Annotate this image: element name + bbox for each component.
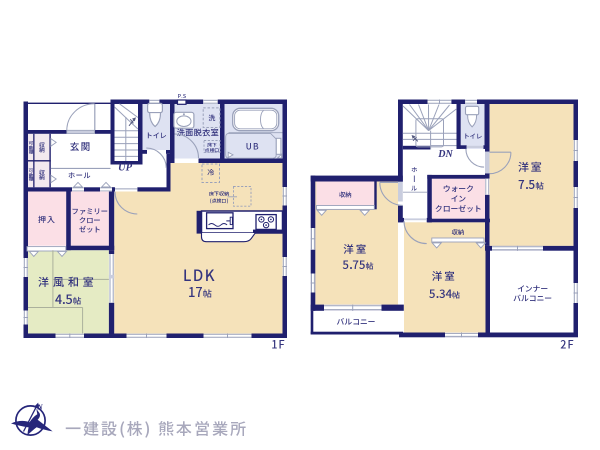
svg-text:クローゼット: クローゼット bbox=[435, 204, 482, 215]
svg-text:バルコニー: バルコニー bbox=[337, 317, 376, 328]
svg-text:収納: 収納 bbox=[38, 168, 47, 180]
svg-text:ゼット: ゼット bbox=[79, 225, 101, 235]
svg-text:UB: UB bbox=[246, 141, 260, 153]
svg-text:収納: 収納 bbox=[38, 141, 47, 153]
svg-text:洋風和室: 洋風和室 bbox=[38, 274, 98, 290]
svg-text:押入: 押入 bbox=[38, 215, 56, 226]
svg-text:可動棚: 可動棚 bbox=[28, 140, 34, 154]
svg-text:DN: DN bbox=[437, 149, 453, 160]
svg-text:ホール: ホール bbox=[68, 171, 91, 181]
svg-text:収納: 収納 bbox=[338, 190, 352, 199]
svg-text:2F: 2F bbox=[560, 337, 575, 353]
svg-text:(点検口): (点検口) bbox=[210, 198, 229, 205]
svg-text:P.S: P.S bbox=[178, 92, 187, 100]
svg-text:ホ: ホ bbox=[411, 165, 418, 174]
svg-text:収納: 収納 bbox=[451, 227, 465, 236]
svg-text:玄関: 玄関 bbox=[70, 139, 91, 153]
svg-text:N: N bbox=[36, 403, 43, 412]
svg-text:洋室: 洋室 bbox=[518, 159, 544, 175]
svg-text:点検口: 点検口 bbox=[204, 147, 220, 154]
svg-text:洗: 洗 bbox=[208, 114, 215, 124]
svg-text:ル: ル bbox=[411, 184, 417, 193]
svg-text:洗面脱衣室: 洗面脱衣室 bbox=[177, 127, 219, 139]
svg-text:トイレ: トイレ bbox=[463, 131, 482, 140]
svg-text:洋室: 洋室 bbox=[432, 269, 457, 284]
svg-text:冷: 冷 bbox=[206, 168, 214, 178]
svg-text:1F: 1F bbox=[271, 337, 286, 353]
svg-text:一建設(株) 熊本営業所: 一建設(株) 熊本営業所 bbox=[65, 416, 248, 440]
svg-text:洋室: 洋室 bbox=[344, 242, 369, 257]
svg-text:トイレ: トイレ bbox=[146, 131, 167, 141]
svg-text:可動棚: 可動棚 bbox=[28, 167, 34, 181]
svg-text:UP: UP bbox=[118, 163, 133, 174]
svg-text:バルコニー: バルコニー bbox=[513, 293, 552, 304]
